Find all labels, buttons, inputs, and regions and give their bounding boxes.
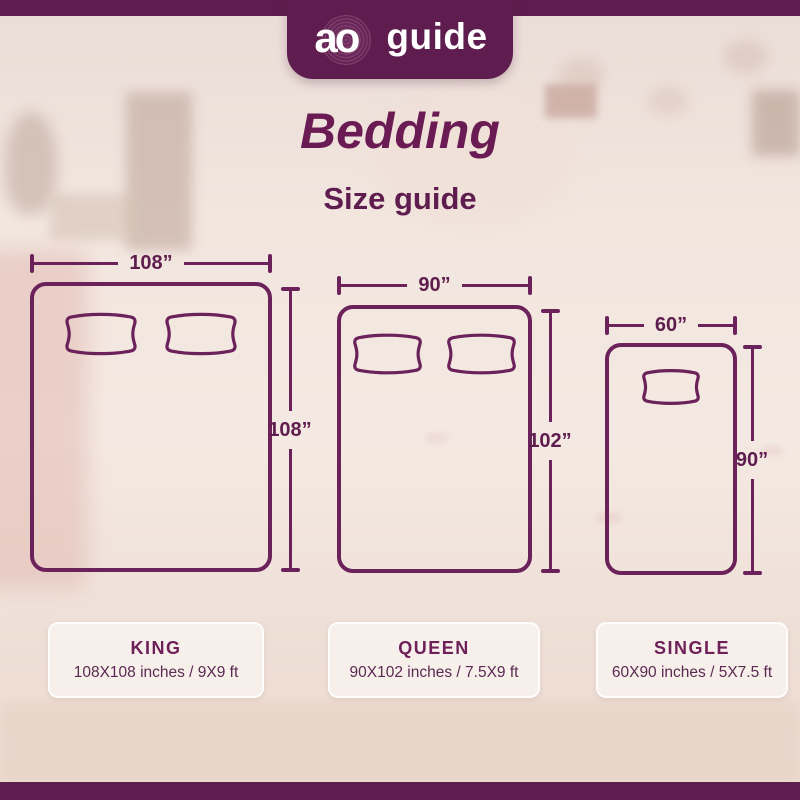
measure-tick: [541, 569, 560, 573]
bedding-size-guide-infographic: ao guide Bedding Size guide 108” 108” 90…: [0, 0, 800, 800]
bottom-accent-strip: [0, 782, 800, 800]
bg-bed-edge: [0, 702, 800, 782]
pillow-icon: [161, 310, 241, 358]
measure-tick: [743, 571, 762, 575]
measure-line: [751, 349, 754, 441]
king-width-label: 108”: [129, 253, 172, 273]
brand-logo-badge: ao guide: [287, 0, 513, 79]
measure-line: [751, 479, 754, 571]
size-card-queen: QUEEN 90X102 inches / 7.5X9 ft: [328, 622, 540, 698]
page-title: Bedding: [0, 102, 800, 160]
single-height-measure: 90”: [732, 345, 772, 575]
size-card-details: 108X108 inches / 9X9 ft: [74, 664, 239, 682]
measure-tick: [281, 568, 300, 572]
single-pillows: [609, 367, 733, 407]
king-width-measure: 108”: [30, 253, 272, 273]
measure-tick: [733, 316, 737, 335]
single-width-label: 60”: [655, 315, 687, 335]
brand-logo-icon: ao: [312, 11, 378, 69]
queen-width-measure: 90”: [337, 275, 532, 295]
measure-line: [549, 460, 552, 569]
pillow-icon: [443, 331, 520, 377]
king-height-label: 108”: [268, 420, 311, 440]
measure-tick: [528, 276, 532, 295]
queen-bed-outline: [337, 305, 532, 573]
measure-line: [34, 262, 118, 265]
queen-height-measure: 102”: [530, 309, 570, 573]
size-card-title: KING: [131, 638, 182, 659]
measure-line: [549, 313, 552, 422]
size-card-details: 90X102 inches / 7.5X9 ft: [350, 664, 519, 682]
measure-line: [289, 291, 292, 411]
size-card-title: SINGLE: [654, 638, 730, 659]
king-pillows: [34, 310, 268, 358]
single-bed-outline: [605, 343, 737, 575]
size-card-title: QUEEN: [398, 638, 470, 659]
size-card-king: KING 108X108 inches / 9X9 ft: [48, 622, 264, 698]
measure-line: [184, 262, 268, 265]
measure-line: [289, 449, 292, 569]
measure-line: [341, 284, 407, 287]
pillow-icon: [639, 367, 703, 407]
queen-height-label: 102”: [528, 431, 571, 451]
measure-line: [462, 284, 528, 287]
king-height-measure: 108”: [270, 287, 310, 572]
pillow-icon: [61, 310, 141, 358]
brand-monogram: ao: [314, 16, 357, 58]
single-height-label: 90”: [736, 450, 768, 470]
pillow-icon: [349, 331, 426, 377]
size-card-single: SINGLE 60X90 inches / 5X7.5 ft: [596, 622, 788, 698]
size-card-details: 60X90 inches / 5X7.5 ft: [612, 664, 772, 682]
single-width-measure: 60”: [605, 315, 737, 335]
queen-pillows: [341, 331, 528, 377]
page-subtitle: Size guide: [0, 181, 800, 217]
queen-width-label: 90”: [418, 275, 450, 295]
measure-tick: [268, 254, 272, 273]
brand-name: guide: [386, 16, 487, 63]
measure-line: [698, 324, 733, 327]
king-bed-outline: [30, 282, 272, 572]
bg-palm-print: [558, 58, 604, 92]
bg-palm-print: [724, 40, 768, 74]
measure-line: [609, 324, 644, 327]
